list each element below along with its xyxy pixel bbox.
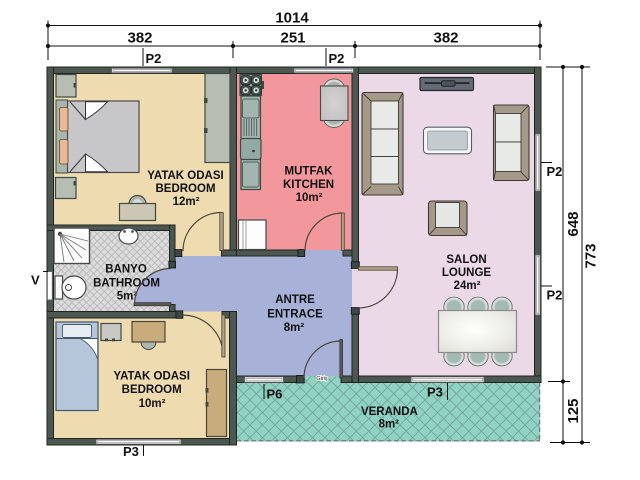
- svg-text:BANYO: BANYO: [105, 264, 147, 276]
- svg-text:382: 382: [127, 30, 152, 47]
- svg-text:BEDROOM: BEDROOM: [155, 183, 215, 195]
- svg-text:10m²: 10m²: [296, 192, 323, 204]
- svg-text:P6: P6: [267, 387, 283, 402]
- svg-text:P2: P2: [547, 164, 563, 179]
- svg-text:P3: P3: [427, 385, 443, 400]
- svg-text:YATAK ODASI: YATAK ODASI: [113, 371, 189, 383]
- svg-text:251: 251: [280, 30, 305, 47]
- svg-text:YATAK ODASI: YATAK ODASI: [147, 170, 223, 182]
- svg-text:MUTFAK: MUTFAK: [285, 166, 334, 178]
- svg-text:1014: 1014: [275, 10, 309, 27]
- svg-text:8m²: 8m²: [379, 419, 400, 431]
- svg-text:10m²: 10m²: [139, 398, 166, 410]
- svg-text:12m²: 12m²: [173, 196, 200, 208]
- svg-text:ANTRE: ANTRE: [275, 294, 315, 306]
- svg-text:BATHROOM: BATHROOM: [93, 278, 160, 290]
- svg-text:8m²: 8m²: [284, 322, 305, 334]
- svg-text:773: 773: [583, 243, 600, 268]
- svg-text:125: 125: [565, 398, 582, 423]
- svg-text:P3: P3: [123, 444, 139, 459]
- svg-text:ENTRACE: ENTRACE: [267, 309, 323, 321]
- svg-text:P2: P2: [329, 51, 345, 66]
- svg-text:LOUNGE: LOUNGE: [442, 267, 492, 279]
- svg-text:648: 648: [565, 211, 582, 236]
- svg-text:KITCHEN: KITCHEN: [283, 179, 334, 191]
- svg-text:VERANDA: VERANDA: [361, 406, 418, 418]
- svg-text:SALON: SALON: [446, 254, 486, 266]
- svg-text:Giriş: Giriş: [316, 376, 328, 382]
- svg-text:BEDROOM: BEDROOM: [122, 384, 182, 396]
- svg-text:382: 382: [433, 30, 458, 47]
- svg-text:V: V: [31, 273, 40, 288]
- svg-text:24m²: 24m²: [454, 280, 481, 292]
- svg-text:P2: P2: [547, 288, 563, 303]
- svg-text:P2: P2: [146, 51, 162, 66]
